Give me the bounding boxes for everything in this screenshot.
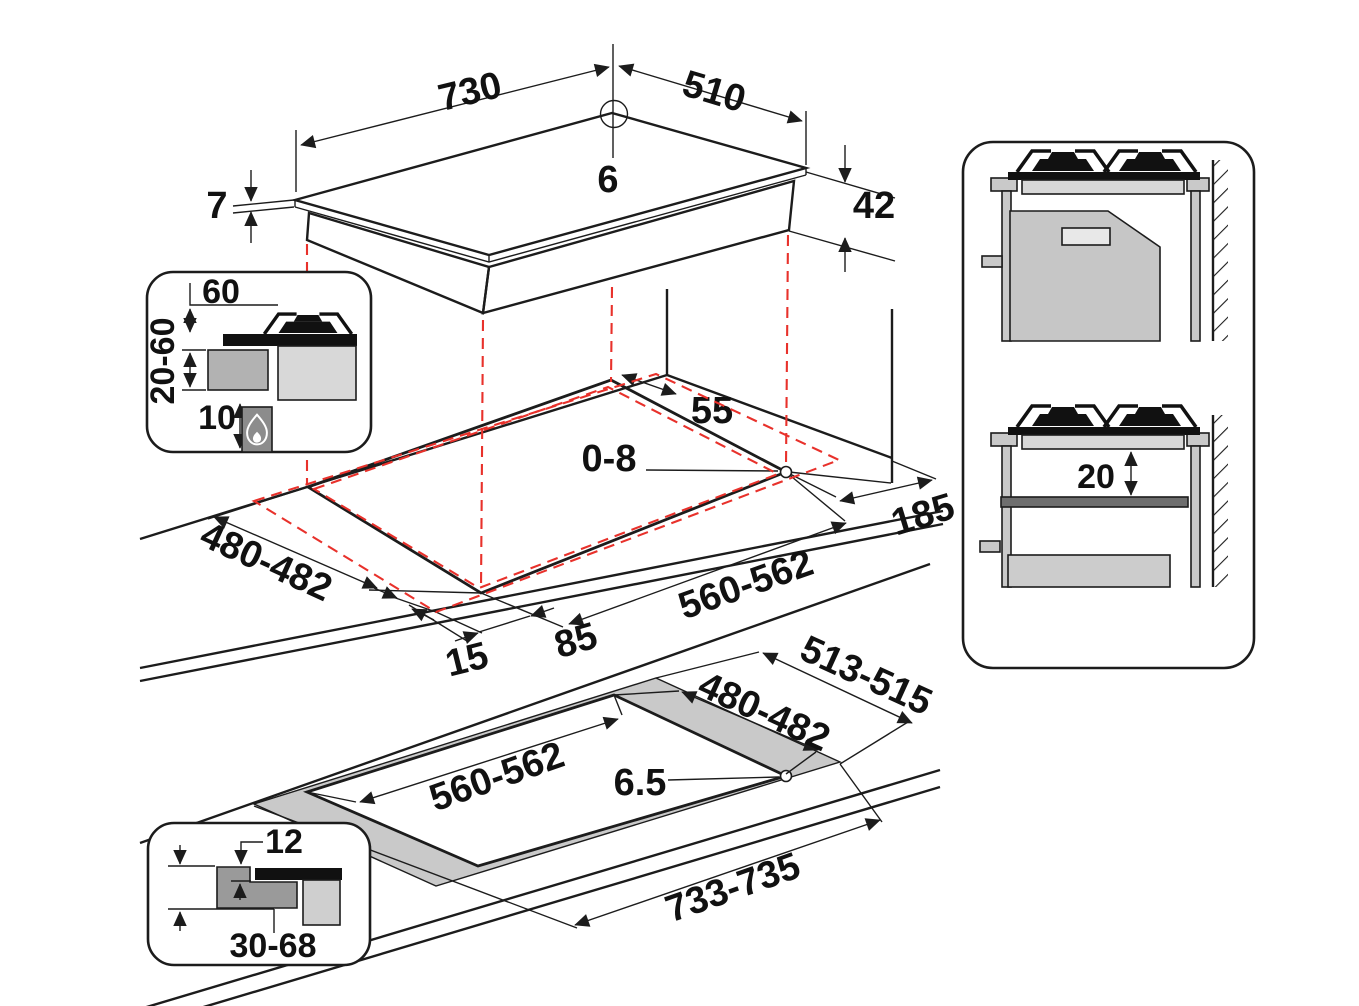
- oven-vent: [1062, 228, 1110, 245]
- worktop2-back-edge: [140, 564, 930, 843]
- separator-shelf: [1001, 497, 1188, 507]
- worktop-thickness-label: 30-68: [230, 927, 317, 965]
- section-oven-under-hob: [982, 151, 1228, 341]
- hob-depth-label: 510: [678, 63, 751, 121]
- flush-body-section: [303, 880, 340, 925]
- recess-step-label: 12: [265, 823, 303, 861]
- cutout-depth-label: 480-482: [194, 514, 338, 610]
- side-overhang-label: 15: [441, 635, 492, 686]
- rear-wall-distance-label: 55: [691, 390, 733, 432]
- drawer-front: [1008, 555, 1170, 587]
- hob-body-section-a: [1022, 180, 1184, 194]
- side-clearance-label: 20-60: [144, 318, 182, 405]
- dim-corner-radius: 6.5: [614, 762, 779, 804]
- glass-section: [223, 334, 357, 346]
- hob-width-label: 730: [434, 64, 505, 120]
- corner-gap-marker: [781, 467, 792, 478]
- corner-radius-label: 6.5: [614, 762, 667, 804]
- top-clearance-label: 60: [202, 273, 240, 311]
- glass-thickness-label: 6: [597, 159, 618, 201]
- projection-right: [786, 235, 788, 466]
- rim-thickness-label: 7: [206, 185, 227, 227]
- cabinet-side-right2: [1191, 446, 1200, 587]
- cabinet-side-right: [1191, 191, 1200, 341]
- hob-glass-section-a: [1008, 172, 1200, 180]
- flush-glass-section: [255, 868, 342, 880]
- hob-body-section-b: [1022, 435, 1184, 449]
- front-overhang-label: 85: [550, 615, 602, 667]
- gas-clearance-label: 10: [198, 399, 236, 437]
- min-shelf-gap-label: 20: [1077, 458, 1115, 496]
- total-height-label: 42: [853, 185, 895, 227]
- dim-total-height: 42: [789, 145, 895, 272]
- dim-rim-thickness: 7: [206, 170, 294, 243]
- dim-hob-width: 730: [296, 44, 613, 192]
- cabinet-section-panel: 20: [963, 142, 1254, 668]
- dim-side-wall-distance: 185: [786, 461, 959, 544]
- installation-diagram: 480-482 560-562 185 55 85: [0, 0, 1359, 1006]
- corner-gap-label: 0-8: [582, 438, 637, 480]
- hob-body-section: [278, 346, 356, 400]
- projection-front: [481, 320, 483, 590]
- dim-hob-depth: 510: [619, 63, 806, 165]
- section-drawer-under-hob: 20: [980, 406, 1228, 587]
- side-wall-distance-label: 185: [887, 486, 960, 545]
- clearance-inset-panel: 60 20-60 10: [144, 272, 371, 452]
- hob-body-right-face: [483, 181, 794, 313]
- projection-back: [611, 287, 612, 382]
- adjacent-cabinet-section: [208, 350, 268, 390]
- recess-depth-label: 513-515: [794, 628, 938, 724]
- hob-glass-section-b: [1008, 427, 1200, 435]
- wall-hatch-top: [1213, 160, 1228, 341]
- dim-flush-cutout-width: 560-562: [307, 695, 622, 820]
- gas-inlet-tab: [982, 256, 1002, 267]
- installation-diagram-page: 480-482 560-562 185 55 85: [0, 0, 1359, 1006]
- hob-glass-top: [295, 113, 806, 255]
- gas-inlet-tab2: [980, 541, 1000, 552]
- corner-radius-marker: [781, 771, 792, 782]
- wall-hatch-bottom: [1213, 415, 1228, 587]
- flush-inset-panel: 12 30-68: [148, 823, 370, 965]
- recess-width-label: 733-735: [660, 845, 805, 931]
- cutout-width-label: 560-562: [673, 542, 818, 628]
